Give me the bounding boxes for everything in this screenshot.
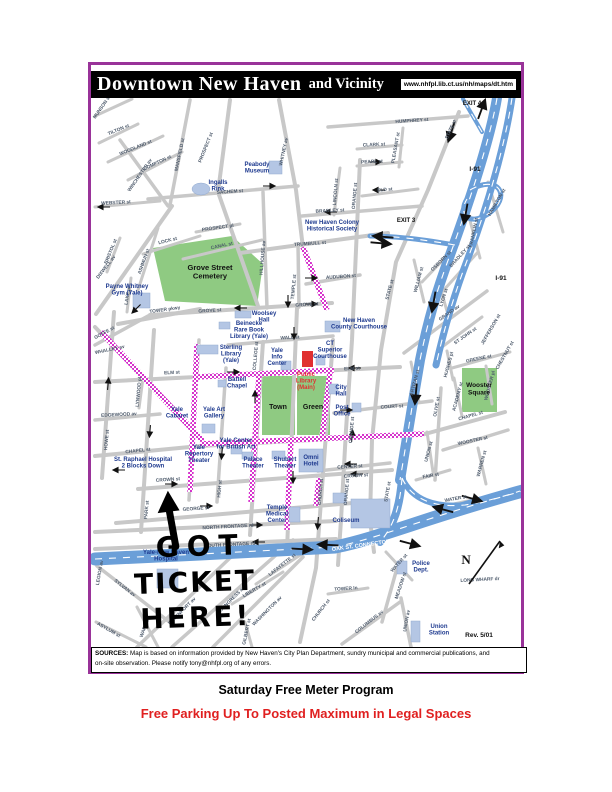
title-bar: Downtown New Haven and Vicinity www.nhfp…	[91, 71, 521, 98]
sources-box: SOURCES: Map is based on information pro…	[91, 647, 527, 673]
street-label: COLLEGE st	[252, 341, 261, 371]
street-label: LINCOLN st	[332, 178, 340, 206]
page: Downtown New Haven and Vicinity www.nhfp…	[0, 0, 612, 792]
place-label: Medical	[266, 512, 288, 518]
compass-n: N	[461, 552, 471, 567]
place-label: Rink	[211, 187, 225, 193]
place-label: Yale Center	[220, 438, 253, 444]
street-label: COURT st	[380, 403, 403, 411]
place-label: Ingalls	[208, 180, 228, 186]
annotation-text: GOT	[155, 528, 246, 564]
annotation-text: HERE!	[140, 599, 252, 636]
street-label: CENTER st	[337, 463, 363, 471]
place-label: County Courthouse	[331, 325, 388, 331]
street-label: WOOSTER st	[457, 435, 488, 447]
street-label: GREENE st	[466, 353, 493, 364]
map-url: www.nhfpl.lib.ct.us/nh/maps/dt.htm	[400, 78, 517, 91]
street-label: HUMPHREY st	[395, 117, 429, 125]
street-label: ELM st	[344, 366, 360, 373]
library-label: Library	[296, 379, 317, 385]
map-canvas: MUNSON stTILTON stWOODLAND stCOMPTON stW…	[91, 98, 521, 647]
place-label: Historical Society	[307, 227, 358, 233]
place-label: Library (Yale)	[230, 334, 268, 340]
place-label: Police	[412, 561, 430, 567]
street-label: ASYLUM st	[96, 621, 122, 639]
place-label: Yale	[193, 445, 206, 451]
place-label: Yale	[271, 348, 284, 354]
place-label: Hotel	[304, 462, 319, 468]
street-label: PEARL st	[361, 158, 383, 165]
map-inner: Downtown New Haven and Vicinity www.nhfp…	[91, 65, 521, 671]
street-label: GEORGE st	[182, 505, 209, 513]
place-label: Rare Book	[234, 328, 265, 334]
park-label: Wooster	[466, 382, 492, 389]
place-label: Post	[335, 405, 348, 411]
street-label: PROSPECT pl	[202, 223, 235, 233]
park-label: Cemetery	[193, 272, 228, 281]
place-label: Union	[431, 624, 448, 630]
annotation-text: TICKET	[134, 564, 257, 601]
street-label: WALL st	[280, 334, 300, 341]
park-label: Green	[303, 404, 323, 411]
caption-program: Saturday Free Meter Program	[0, 683, 612, 697]
place-label: Peabody	[244, 162, 270, 168]
place-label: Chapel	[227, 384, 247, 390]
place-label: Theater	[242, 464, 264, 470]
place-label: Beinecke	[236, 321, 263, 327]
street-label: UNION st	[423, 440, 434, 462]
place-label: Theater	[274, 464, 296, 470]
place-label: Battell	[228, 377, 247, 383]
park-label: Square	[468, 390, 490, 397]
free-meter-street	[190, 344, 197, 492]
street-label: HUGHES pl	[443, 351, 456, 378]
map-frame: Downtown New Haven and Vicinity www.nhfp…	[88, 62, 524, 674]
place-label: Center	[267, 518, 287, 524]
place-label: Shubert	[274, 457, 297, 463]
sources-label: SOURCES:	[95, 650, 128, 657]
street-label: FAIR st	[422, 472, 440, 481]
street-label: CLARK st	[363, 141, 386, 148]
place-label: Woolsey	[252, 311, 277, 317]
highway-label: EXIT 3	[397, 218, 416, 224]
place-label: Repertory	[185, 452, 214, 458]
street-label: WEBSTER st	[101, 199, 131, 207]
place-label: (Yale)	[223, 358, 239, 364]
street-label: WARREN st	[476, 450, 489, 478]
street-label: TRUMBULL st	[294, 240, 327, 248]
building	[218, 380, 226, 387]
place-label: Superior	[318, 348, 343, 354]
map-subtitle: and Vicinity	[309, 76, 384, 93]
place-label: Hall	[335, 392, 346, 398]
annotation-arrowhead	[157, 490, 180, 513]
place-label: Gym (Yale)	[111, 291, 142, 297]
place-label: New Haven Colony	[305, 220, 360, 226]
street-line	[298, 244, 299, 307]
place-label: 2 Blocks Down	[122, 464, 165, 470]
place-label: Info	[272, 355, 283, 361]
street-label: JEFFERSON st	[480, 313, 503, 346]
place-label: Theater	[188, 458, 210, 464]
sources-line2: on-site observation. Please notify tony@…	[95, 660, 271, 667]
street-label: WASHINGTON av	[251, 595, 283, 627]
map-title: Downtown New Haven	[97, 73, 302, 96]
place-label: Coliseum	[332, 518, 359, 524]
place-label: Office	[333, 412, 351, 418]
place-label: St. Raphael Hospital	[114, 457, 172, 463]
place-label: Payne Whitney	[106, 284, 149, 290]
place-label: Courthouse	[313, 354, 347, 360]
library-marker	[302, 351, 313, 367]
highway-label: I-91	[469, 166, 481, 173]
highway-label: I-91	[495, 275, 507, 282]
place-label: Sterling	[220, 345, 243, 351]
place-label: Library	[221, 352, 242, 358]
street-label: AUDUBON st	[326, 273, 357, 281]
street-label: TOWER ln	[334, 585, 358, 593]
place-label: Omni	[303, 455, 319, 461]
street-label: STATE st	[383, 481, 393, 503]
place-label: CT	[326, 341, 334, 347]
building	[197, 345, 218, 354]
place-label: Gallery	[204, 414, 225, 420]
library-label: Public	[297, 372, 316, 378]
caption-parking: Free Parking Up To Posted Maximum in Leg…	[0, 706, 612, 721]
building	[219, 322, 230, 329]
place-label: Center	[267, 361, 287, 367]
sources-line1: Map is based on information provided by …	[128, 650, 489, 657]
library-label: (Main)	[297, 385, 315, 391]
highway-label: Rev. 5/01	[465, 632, 493, 639]
place-label: Dept.	[414, 568, 429, 574]
place-label: for British Art	[217, 445, 256, 451]
street-label: CHURCH st	[311, 598, 332, 623]
street-label: STATE st	[384, 279, 395, 301]
street-line	[279, 100, 303, 248]
building	[235, 311, 251, 318]
street-label: WINCHESTER av	[127, 157, 154, 193]
street-label: CROWN st	[156, 476, 181, 484]
place-label: New Haven	[343, 318, 375, 324]
place-label: City	[335, 385, 347, 391]
building	[352, 403, 361, 412]
place-label: Temple	[267, 505, 288, 511]
place-label: Museum	[245, 169, 269, 175]
place-label: Station	[429, 631, 450, 637]
building	[411, 621, 420, 642]
street-label: TEMPLE st	[290, 274, 298, 300]
street-label: LONG WHARF dr	[460, 576, 500, 584]
building	[289, 507, 300, 522]
street-label: PROSPECT st	[197, 131, 215, 163]
place-label: Yale	[171, 407, 184, 413]
place-label: Cabaret	[166, 414, 188, 420]
building-ellipse	[192, 183, 210, 195]
highway-label: EXIT 4	[463, 101, 482, 107]
place-label: Palace	[243, 457, 263, 463]
street-label: ELM st	[164, 370, 180, 377]
building	[202, 424, 215, 433]
park-label: Town	[269, 404, 287, 411]
place-label: Yale Art	[203, 407, 225, 413]
